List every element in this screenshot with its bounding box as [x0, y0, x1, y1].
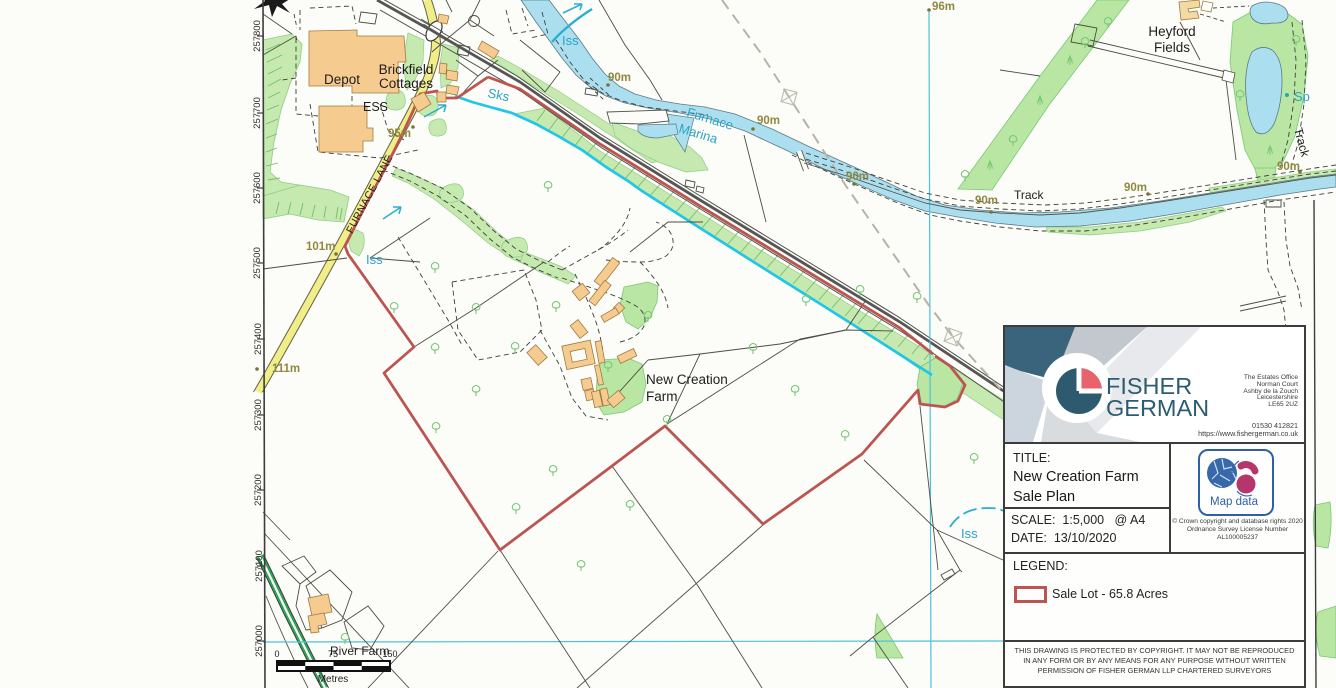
svg-text:257600: 257600	[252, 172, 263, 204]
svg-text:Iss: Iss	[562, 33, 579, 48]
svg-text:Track: Track	[1014, 188, 1045, 202]
svg-text:96m: 96m	[932, 1, 955, 13]
svg-text:GERMAN: GERMAN	[1106, 395, 1209, 421]
svg-text:FURNACE LANE: FURNACE LANE	[344, 153, 395, 236]
svg-text:Cottages: Cottages	[379, 76, 433, 91]
svg-text:New Creation: New Creation	[646, 372, 728, 387]
svg-text:ESS: ESS	[363, 100, 388, 114]
svg-text:Heyford: Heyford	[1148, 24, 1195, 39]
svg-text:Fields: Fields	[1154, 40, 1190, 55]
svg-text:257800: 257800	[252, 20, 263, 52]
svg-text:75: 75	[328, 649, 338, 659]
svg-text:150: 150	[382, 649, 397, 659]
svg-text:Iss: Iss	[961, 526, 978, 541]
svg-text:90m: 90m	[846, 171, 869, 183]
svg-text:90m: 90m	[757, 115, 780, 127]
svg-text:River Farm: River Farm	[330, 644, 389, 658]
svg-text:Map data: Map data	[1210, 496, 1259, 508]
svg-text:257300: 257300	[253, 399, 264, 431]
svg-text:90m: 90m	[1277, 161, 1300, 173]
svg-text:90m: 90m	[975, 195, 998, 207]
svg-text:90m: 90m	[1124, 182, 1147, 194]
svg-text:Brickfield: Brickfield	[379, 62, 434, 77]
svg-text:257700: 257700	[252, 97, 263, 129]
svg-text:257100: 257100	[254, 550, 265, 582]
svg-text:257400: 257400	[253, 323, 264, 355]
svg-text:101m: 101m	[306, 241, 335, 253]
svg-text:Sp: Sp	[1294, 89, 1310, 104]
svg-text:0: 0	[274, 649, 279, 659]
svg-text:Farm: Farm	[646, 389, 678, 404]
svg-text:111m: 111m	[272, 363, 300, 375]
svg-text:257200: 257200	[253, 474, 264, 506]
svg-text:90m: 90m	[608, 72, 631, 84]
svg-text:Depot: Depot	[324, 72, 360, 87]
svg-text:257500: 257500	[252, 247, 263, 279]
svg-text:257000: 257000	[254, 625, 265, 657]
svg-text:Metres: Metres	[318, 674, 349, 685]
svg-text:Iss: Iss	[366, 252, 383, 267]
svg-text:Sks: Sks	[486, 85, 511, 104]
svg-text:Track: Track	[1291, 126, 1312, 159]
svg-text:95m: 95m	[388, 128, 411, 140]
